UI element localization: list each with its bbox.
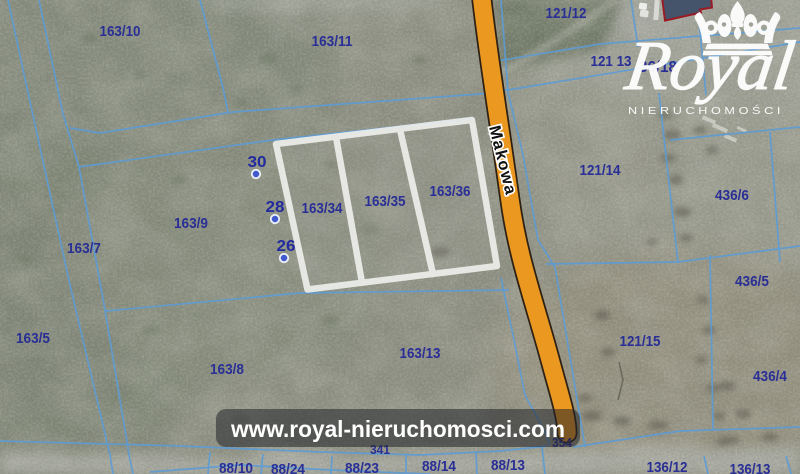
svg-text:163/13: 163/13	[400, 346, 441, 362]
svg-text:163/8: 163/8	[210, 362, 244, 378]
svg-text:163/7: 163/7	[67, 241, 101, 257]
svg-text:436/4: 436/4	[753, 369, 787, 385]
svg-text:121/15: 121/15	[620, 334, 661, 350]
svg-text:163/10: 163/10	[100, 24, 141, 40]
svg-text:121 13: 121 13	[591, 54, 632, 70]
svg-text:www.royal-nieruchomosci.com: www.royal-nieruchomosci.com	[230, 416, 565, 442]
svg-text:88/24: 88/24	[271, 462, 305, 474]
svg-text:163/9: 163/9	[174, 216, 208, 232]
svg-text:121/14: 121/14	[580, 163, 621, 179]
svg-text:163/5: 163/5	[16, 331, 50, 347]
svg-text:88/14: 88/14	[422, 459, 456, 474]
svg-text:436/6: 436/6	[715, 188, 749, 204]
svg-text:88/13: 88/13	[491, 458, 525, 474]
svg-text:436/5: 436/5	[735, 274, 769, 290]
svg-text:28: 28	[266, 199, 285, 216]
svg-text:26: 26	[277, 238, 296, 255]
svg-text:136/12: 136/12	[647, 460, 688, 474]
svg-text:163/35: 163/35	[365, 193, 406, 210]
svg-text:163/11: 163/11	[312, 34, 353, 50]
svg-text:88/10: 88/10	[219, 461, 253, 474]
svg-text:NIERUCHOMOŚCI: NIERUCHOMOŚCI	[628, 104, 784, 117]
svg-text:121/12: 121/12	[546, 6, 587, 22]
svg-text:163/34: 163/34	[302, 200, 344, 217]
svg-text:88/23: 88/23	[345, 461, 379, 474]
svg-text:136/13: 136/13	[730, 462, 771, 474]
svg-text:163/36: 163/36	[430, 183, 471, 200]
svg-text:30: 30	[248, 154, 267, 171]
svg-text:Royal: Royal	[620, 27, 799, 105]
